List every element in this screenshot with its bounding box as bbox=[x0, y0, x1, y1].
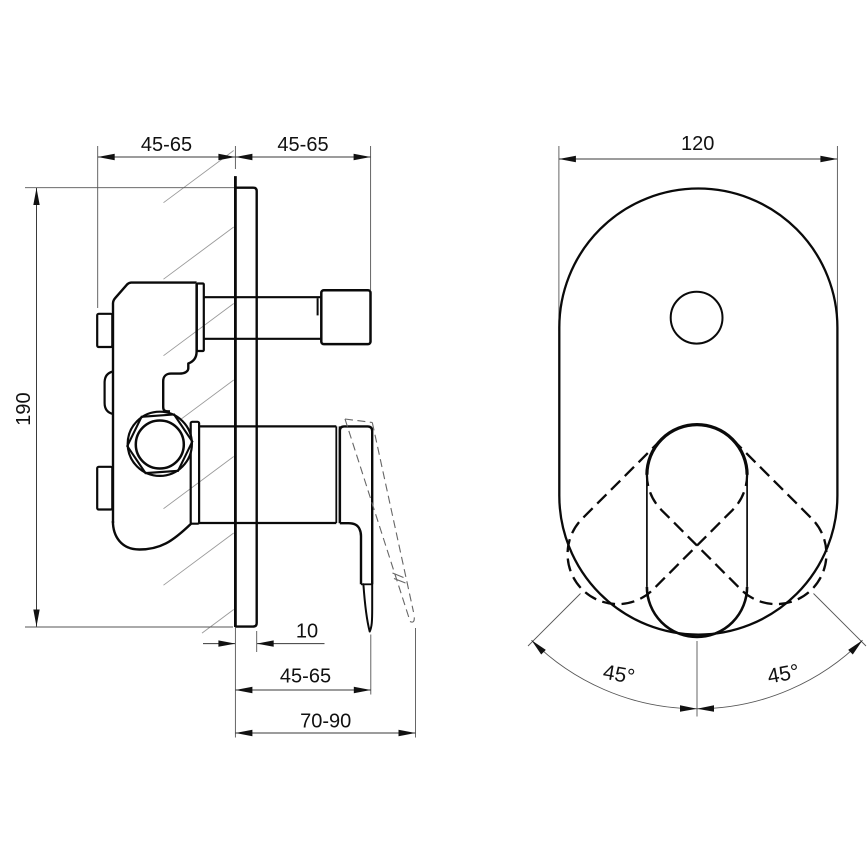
svg-text:120: 120 bbox=[681, 133, 714, 155]
svg-text:10: 10 bbox=[296, 621, 318, 643]
svg-text:45-65: 45-65 bbox=[277, 134, 328, 156]
svg-text:190: 190 bbox=[13, 392, 35, 425]
svg-text:70-90: 70-90 bbox=[300, 711, 351, 733]
svg-text:45-65: 45-65 bbox=[141, 134, 192, 156]
svg-text:45-65: 45-65 bbox=[280, 666, 331, 688]
